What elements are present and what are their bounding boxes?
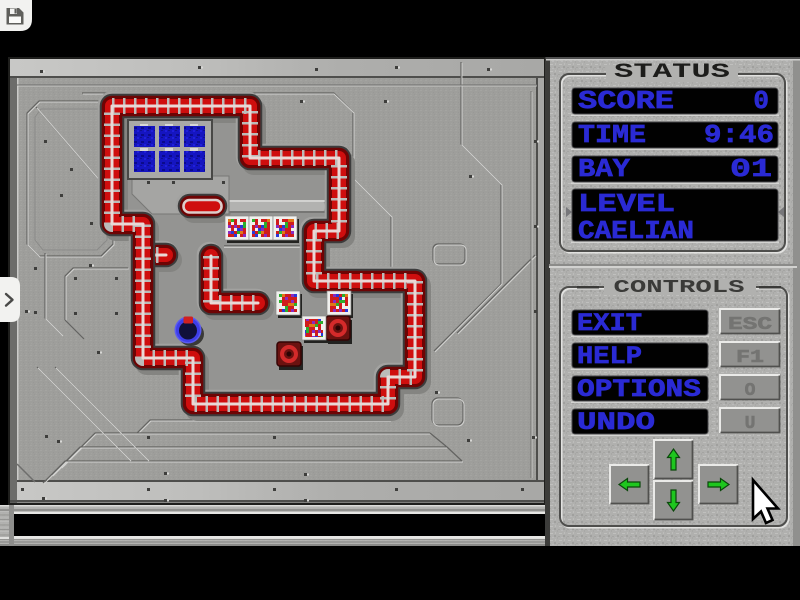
svg-text:UNDO: UNDO — [577, 408, 655, 437]
svg-text:SCORE: SCORE — [578, 86, 674, 116]
svg-text:STATUS: STATUS — [614, 61, 730, 84]
svg-text:ESC: ESC — [728, 315, 772, 335]
svg-text:BAY: BAY — [578, 154, 630, 184]
svg-text:9:46: 9:46 — [704, 120, 774, 150]
svg-text:OPTIONS: OPTIONS — [577, 375, 701, 404]
svg-text:F1: F1 — [736, 348, 764, 368]
svg-text:CONTROLS: CONTROLS — [614, 278, 745, 298]
svg-text:01: 01 — [730, 154, 772, 184]
svg-text:U: U — [745, 414, 756, 434]
svg-text:LEVEL: LEVEL — [578, 189, 675, 219]
svg-text:O: O — [745, 381, 756, 401]
svg-text:HELP: HELP — [577, 342, 642, 371]
svg-text:CAELIAN: CAELIAN — [578, 216, 694, 246]
svg-text:TIME: TIME — [578, 120, 646, 150]
svg-text:EXIT: EXIT — [577, 309, 642, 338]
svg-text:0: 0 — [753, 86, 769, 116]
